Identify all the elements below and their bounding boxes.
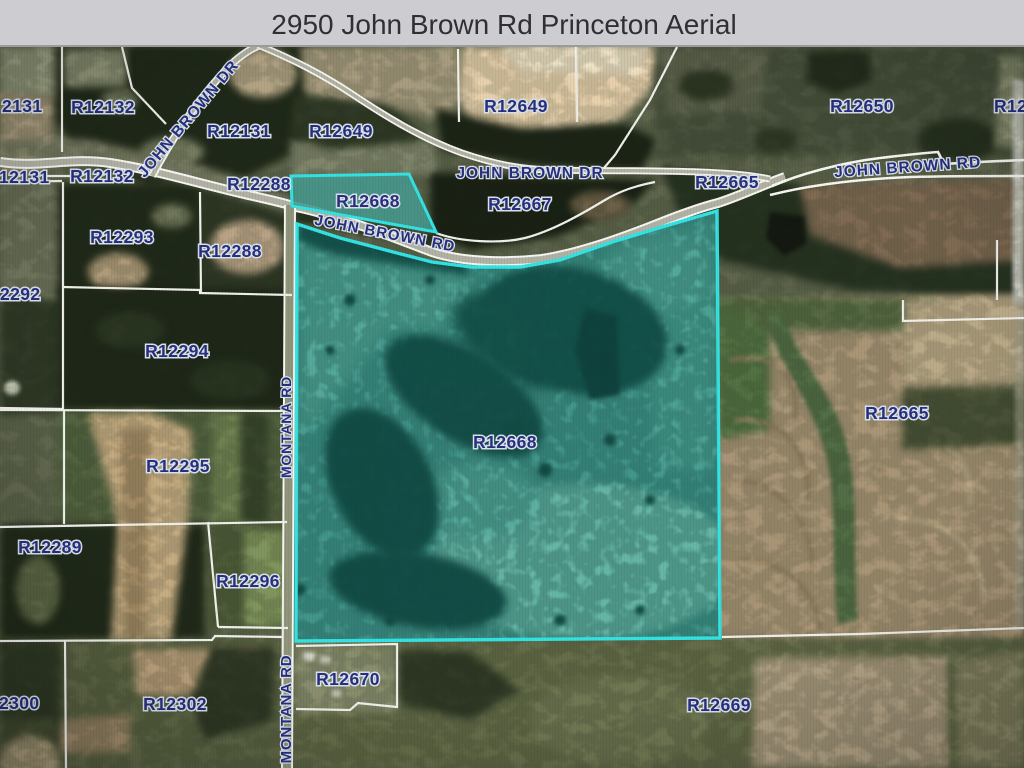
svg-text:2950 John Brown Rd Princeton A: 2950 John Brown Rd Princeton Aerial <box>271 9 736 40</box>
